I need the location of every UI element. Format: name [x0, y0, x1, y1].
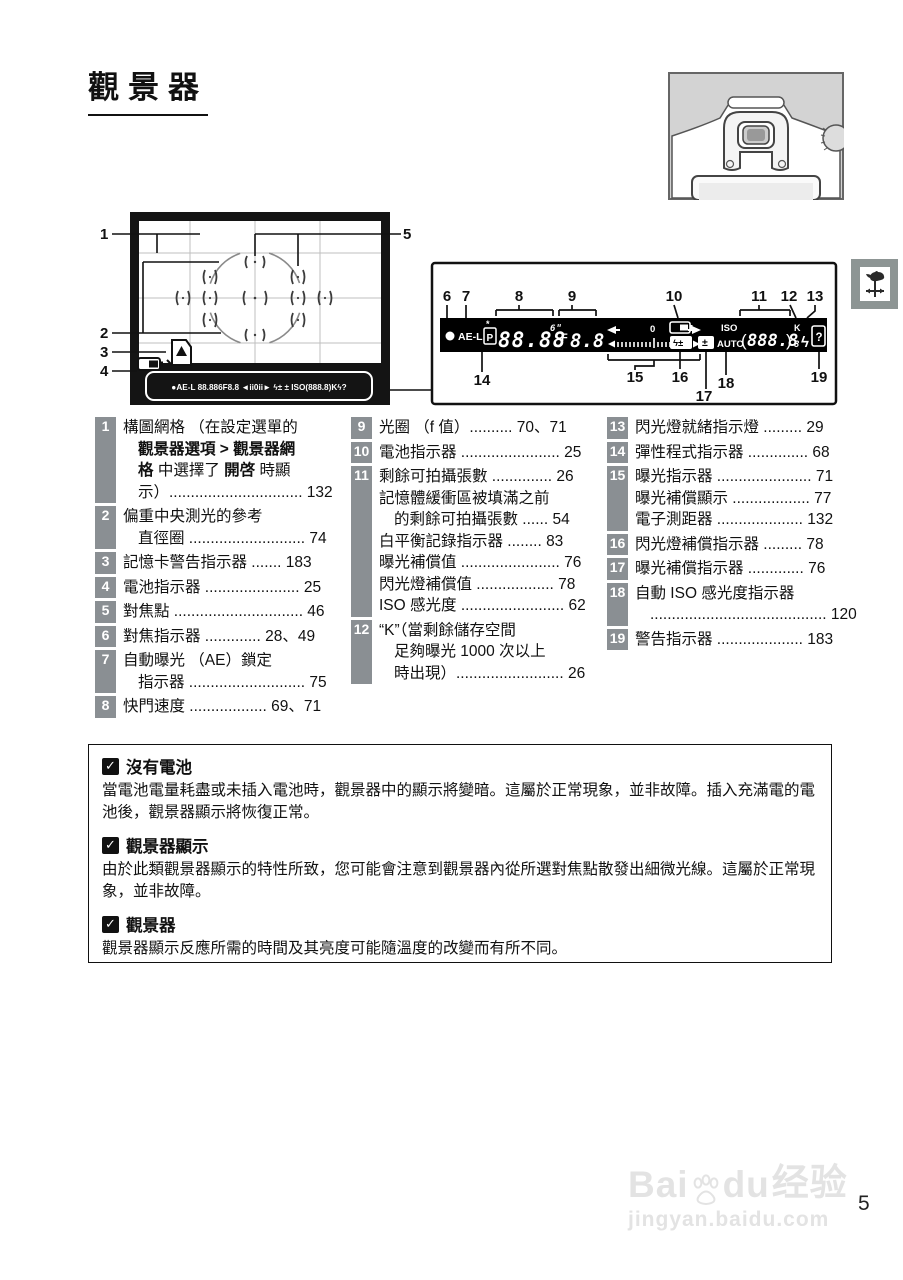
legend-item-content: 剩餘可拍攝張數 .............. 26記憶體緩衝區被填滿之前的剩餘可…	[379, 466, 599, 617]
viewfinder-diagram: ●AE-L 88.886F8.8 ◄ii0ii► ϟ± ± ISO(888.8)…	[88, 200, 845, 412]
legend-item-18: 18自動 ISO 感光度指示器.........................…	[607, 583, 855, 626]
legend-item-number: 10	[351, 442, 372, 464]
baidu-url: jingyan.baidu.com	[628, 1208, 848, 1232]
baidu-paw-icon	[691, 1174, 721, 1206]
legend-text: 格	[138, 462, 154, 479]
auto-label: AUTO	[717, 339, 744, 350]
legend-text: ISO 感光度 ........................ 62	[379, 597, 586, 614]
legend-item-number: 4	[95, 577, 116, 599]
legend-text: 警告指示器 .................... 183	[635, 631, 833, 648]
baidu-logo: Bai du 经验	[628, 1152, 848, 1206]
legend-text: 光圈 （f 值）.......... 70、71	[379, 419, 567, 436]
mode-letter: P	[487, 333, 494, 344]
legend-item-content: 構圖網格 （在設定選單的觀景器選項 > 觀景器網格 中選擇了 開啓 時顯示）..…	[123, 417, 343, 503]
note-title: ✓觀景器	[102, 912, 818, 936]
legend-line: 曝光指示器 ...................... 71	[635, 466, 855, 488]
legend-item-12: 12“K”（當剩餘儲存空間足夠曝光 1000 次以上時出現）..........…	[351, 620, 599, 685]
camera-eyepiece-illustration	[668, 72, 844, 200]
legend-item-content: 閃光燈就緒指示燈 ......... 29	[635, 417, 855, 439]
note-title: ✓沒有電池	[102, 754, 818, 778]
callout-17: 17	[696, 388, 713, 405]
legend-item-number: 15	[607, 466, 628, 531]
callout-5: 5	[403, 226, 411, 243]
legend-item-content: 記憶卡警告指示器 ....... 183	[123, 552, 343, 574]
note: ✓沒有電池當電池電量耗盡或未插入電池時，觀景器中的顯示將變暗。這屬於正常現象，並…	[102, 754, 818, 824]
callout-9: 9	[568, 288, 576, 305]
legend-item-number: 19	[607, 629, 628, 651]
legend-text: 直徑圈 ........................... 74	[138, 530, 327, 547]
legend: 1構圖網格 （在設定選單的觀景器選項 > 觀景器網格 中選擇了 開啓 時顯示）.…	[95, 417, 839, 721]
callout-18: 18	[718, 375, 735, 392]
legend-item-4: 4電池指示器 ...................... 25	[95, 577, 343, 599]
legend-item-11: 11剩餘可拍攝張數 .............. 26記憶體緩衝區被填滿之前的剩…	[351, 466, 599, 617]
legend-text: 足夠曝光 1000 次以上	[394, 643, 546, 660]
legend-item-number: 18	[607, 583, 628, 626]
callout-3: 3	[100, 344, 108, 361]
legend-item-number: 11	[351, 466, 372, 617]
legend-line: 快門速度 .................. 69、71	[123, 696, 343, 718]
viewfinder-window	[747, 129, 765, 141]
callout-6: 6	[443, 288, 451, 305]
legend-text: 觀景器選項 > 觀景器網	[138, 441, 295, 458]
legend-item-6: 6對焦指示器 ............. 28、49	[95, 626, 343, 648]
legend-line: 構圖網格 （在設定選單的	[123, 417, 343, 439]
legend-line: 剩餘可拍攝張數 .............. 26	[379, 466, 599, 488]
callout-4: 4	[100, 363, 109, 380]
callout-13: 13	[807, 288, 824, 305]
legend-text: 的剩餘可拍攝張數 ...... 54	[394, 511, 570, 528]
legend-column-1: 1構圖網格 （在設定選單的觀景器選項 > 觀景器網格 中選擇了 開啓 時顯示）.…	[95, 417, 343, 721]
note-body: 當電池電量耗盡或未插入電池時，觀景器中的顯示將變暗。這屬於正常現象，並非故障。插…	[102, 780, 818, 824]
callout-11: 11	[751, 288, 767, 305]
baidu-text-cn: 经验	[772, 1152, 848, 1206]
legend-item-content: 彈性程式指示器 .............. 68	[635, 442, 855, 464]
legend-item-content: “K”（當剩餘儲存空間足夠曝光 1000 次以上時出現）............…	[379, 620, 599, 685]
legend-line: 時出現）......................... 26	[379, 663, 599, 685]
legend-line: 警告指示器 .................... 183	[635, 629, 855, 651]
legend-line: 曝光補償值 ....................... 76	[379, 552, 599, 574]
legend-line: 自動曝光 （AE）鎖定	[123, 650, 343, 672]
legend-text: ........................................…	[650, 606, 857, 623]
legend-text: 自動曝光 （AE）鎖定	[123, 652, 272, 669]
legend-item-number: 9	[351, 417, 372, 439]
legend-text: 曝光補償顯示 .................. 77	[635, 490, 831, 507]
legend-item-19: 19警告指示器 .................... 183	[607, 629, 855, 651]
legend-text: 曝光補償值 ....................... 76	[379, 554, 581, 571]
note-body: 觀景器顯示反應所需的時間及其亮度可能隨溫度的改變而有所不同。	[102, 938, 818, 960]
legend-item-number: 6	[95, 626, 116, 648]
legend-text: 彈性程式指示器 .............. 68	[635, 444, 830, 461]
legend-item-number: 8	[95, 696, 116, 718]
legend-item-content: 曝光補償指示器 ............. 76	[635, 558, 855, 580]
baidu-text-left: Bai	[628, 1164, 689, 1206]
callout-2: 2	[100, 325, 108, 342]
legend-line: 曝光補償指示器 ............. 76	[635, 558, 855, 580]
legend-line: 白平衡記錄指示器 ........ 83	[379, 531, 599, 553]
legend-item-number: 5	[95, 601, 116, 623]
legend-text: 時顯	[255, 462, 290, 479]
mini-lcd-text: ●AE-L 88.886F8.8 ◄ii0ii► ϟ± ± ISO(888.8)…	[171, 383, 346, 392]
legend-text: 記憶卡警告指示器 ....... 183	[123, 554, 312, 571]
note-title-text: 觀景器顯示	[126, 833, 209, 857]
legend-item-content: 快門速度 .................. 69、71	[123, 696, 343, 718]
callout-1: 1	[100, 226, 108, 243]
legend-item-content: 警告指示器 .................... 183	[635, 629, 855, 651]
legend-line: 光圈 （f 值）.......... 70、71	[379, 417, 599, 439]
callout-16: 16	[672, 369, 689, 386]
legend-text: 電池指示器 ....................... 25	[379, 444, 581, 461]
legend-item-content: 電池指示器 ...................... 25	[123, 577, 343, 599]
legend-text: 剩餘可拍攝張數 .............. 26	[379, 468, 574, 485]
legend-item-15: 15曝光指示器 ...................... 71曝光補償顯示 …	[607, 466, 855, 531]
legend-item-5: 5對焦點 .............................. 46	[95, 601, 343, 623]
legend-item-13: 13閃光燈就緒指示燈 ......... 29	[607, 417, 855, 439]
legend-text: 曝光指示器 ...................... 71	[635, 468, 833, 485]
iso-label: ISO	[721, 323, 737, 334]
legend-item-number: 16	[607, 534, 628, 556]
legend-line: 觀景器選項 > 觀景器網	[123, 439, 343, 461]
legend-line: “K”（當剩餘儲存空間	[379, 620, 599, 642]
svg-text:?: ?	[816, 332, 823, 344]
legend-text: 時出現）......................... 26	[394, 665, 585, 682]
baidu-text-right: du	[723, 1164, 770, 1206]
check-icon: ✓	[102, 758, 119, 775]
note-title-text: 觀景器	[126, 912, 176, 936]
legend-line: 偏重中央測光的參考	[123, 506, 343, 528]
legend-item-17: 17曝光補償指示器 ............. 76	[607, 558, 855, 580]
legend-line: 閃光燈就緒指示燈 ......... 29	[635, 417, 855, 439]
check-icon: ✓	[102, 916, 119, 933]
legend-text: 快門速度 .................. 69、71	[123, 698, 321, 715]
legend-item-1: 1構圖網格 （在設定選單的觀景器選項 > 觀景器網格 中選擇了 開啓 時顯示）.…	[95, 417, 343, 503]
legend-text: 偏重中央測光的參考	[123, 508, 263, 525]
legend-item-7: 7自動曝光 （AE）鎖定指示器 ........................…	[95, 650, 343, 693]
callout-19: 19	[811, 369, 828, 386]
callout-14: 14	[474, 372, 491, 389]
note-title-text: 沒有電池	[126, 754, 192, 778]
legend-line: 彈性程式指示器 .............. 68	[635, 442, 855, 464]
legend-line: 閃光燈補償值 .................. 78	[379, 574, 599, 596]
note: ✓觀景器觀景器顯示反應所需的時間及其亮度可能隨溫度的改變而有所不同。	[102, 912, 818, 960]
callout-12: 12	[781, 288, 798, 305]
callout-7: 7	[462, 288, 470, 305]
legend-item-3: 3記憶卡警告指示器 ....... 183	[95, 552, 343, 574]
check-icon: ✓	[102, 837, 119, 854]
legend-text: 電池指示器 ...................... 25	[123, 579, 321, 596]
paren-close: )	[786, 331, 792, 350]
legend-text: 中選擇了	[154, 462, 225, 479]
callout-15: 15	[627, 369, 644, 386]
legend-item-8: 8快門速度 .................. 69、71	[95, 696, 343, 718]
legend-item-10: 10電池指示器 ....................... 25	[351, 442, 599, 464]
page-number: 5	[858, 1192, 870, 1216]
ae-lock-label: AE-L	[458, 331, 483, 343]
legend-line: 的剩餘可拍攝張數 ...... 54	[379, 509, 599, 531]
legend-line: 對焦指示器 ............. 28、49	[123, 626, 343, 648]
legend-item-number: 12	[351, 620, 372, 685]
flash-ready-bolt: ϟ	[801, 334, 809, 351]
legend-line: 對焦點 .............................. 46	[123, 601, 343, 623]
mode-dial	[823, 125, 844, 151]
legend-line: 記憶體緩衝區被填滿之前	[379, 488, 599, 510]
legend-text: “K”（當剩餘儲存空間	[379, 622, 516, 639]
legend-text: 閃光燈補償值 .................. 78	[379, 576, 575, 593]
legend-line: 格 中選擇了 開啓 時顯	[123, 460, 343, 482]
svg-text:±: ±	[702, 337, 708, 349]
legend-text: 對焦指示器 ............. 28、49	[123, 628, 315, 645]
legend-text: 曝光補償指示器 ............. 76	[635, 560, 825, 577]
legend-text: 開啓	[224, 462, 255, 479]
k-indicator: K	[794, 323, 801, 333]
legend-line: 指示器 ........................... 75	[123, 672, 343, 694]
note: ✓觀景器顯示由於此類觀景器顯示的特性所致，您可能會注意到觀景器內從所選對焦點散發…	[102, 833, 818, 903]
monitor-screen	[699, 183, 813, 200]
legend-text: 示）............................... 132	[138, 484, 333, 501]
camera-illustration-svg	[668, 72, 844, 200]
legend-line: 足夠曝光 1000 次以上	[379, 641, 599, 663]
legend-item-number: 13	[607, 417, 628, 439]
legend-item-2: 2偏重中央測光的參考直徑圈 ..........................…	[95, 506, 343, 549]
legend-text: 對焦點 .............................. 46	[123, 603, 325, 620]
legend-item-content: 光圈 （f 值）.......... 70、71	[379, 417, 599, 439]
flash-housing	[728, 97, 784, 108]
callout-10: 10	[666, 288, 683, 305]
legend-item-content: 閃光燈補償指示器 ......... 78	[635, 534, 855, 556]
legend-line: 示）............................... 132	[123, 482, 343, 504]
legend-text: 白平衡記錄指示器 ........ 83	[379, 533, 563, 550]
legend-item-content: 偏重中央測光的參考直徑圈 ...........................…	[123, 506, 343, 549]
legend-column-3: 13閃光燈就緒指示燈 ......... 2914彈性程式指示器 .......…	[607, 417, 855, 721]
flash-compensation-icon: ϟ±	[670, 336, 692, 349]
legend-item-number: 7	[95, 650, 116, 693]
legend-text: 閃光燈補償指示器 ......... 78	[635, 536, 824, 553]
legend-item-number: 17	[607, 558, 628, 580]
legend-item-number: 14	[607, 442, 628, 464]
legend-item-number: 3	[95, 552, 116, 574]
legend-item-content: 對焦點 .............................. 46	[123, 601, 343, 623]
legend-line: 曝光補償顯示 .................. 77	[635, 488, 855, 510]
lcd-panel-group: AE-L * P 88.88 6ʺ F 8.8 0	[432, 263, 836, 405]
legend-item-9: 9光圈 （f 值）.......... 70、71	[351, 417, 599, 439]
viewfinder-frame-group: ●AE-L 88.886F8.8 ◄ii0ii► ϟ± ± ISO(888.8)…	[100, 212, 433, 405]
legend-item-content: 對焦指示器 ............. 28、49	[123, 626, 343, 648]
legend-line: 電池指示器 ...................... 25	[123, 577, 343, 599]
legend-text: 閃光燈就緒指示燈 ......... 29	[635, 419, 824, 436]
aperture-digits: 8.8	[570, 330, 604, 352]
legend-item-14: 14彈性程式指示器 .............. 68	[607, 442, 855, 464]
note-body: 由於此類觀景器顯示的特性所致，您可能會注意到觀景器內從所選對焦點散發出細微光線。…	[102, 859, 818, 903]
legend-line: 直徑圈 ........................... 74	[123, 528, 343, 550]
rooster-weathervane-icon	[862, 269, 888, 299]
callout-8: 8	[515, 288, 523, 305]
legend-item-16: 16閃光燈補償指示器 ......... 78	[607, 534, 855, 556]
legend-item-content: 電池指示器 ....................... 25	[379, 442, 599, 464]
battery-indicator-icon	[138, 358, 163, 370]
svg-text:ϟ±: ϟ±	[673, 338, 683, 349]
legend-line: 閃光燈補償指示器 ......... 78	[635, 534, 855, 556]
legend-text: 自動 ISO 感光度指示器	[635, 585, 794, 602]
k-small-digit: 8	[794, 340, 799, 350]
legend-item-content: 自動 ISO 感光度指示器...........................…	[635, 583, 857, 626]
notes-box: ✓沒有電池當電池電量耗盡或未插入電池時，觀景器中的顯示將變暗。這屬於正常現象，並…	[88, 744, 832, 963]
legend-line: ISO 感光度 ........................ 62	[379, 595, 599, 617]
legend-line: 電子測距器 .................... 132	[635, 509, 855, 531]
chapter-tab	[851, 259, 898, 309]
chapter-tab-inner	[860, 267, 890, 301]
legend-column-2: 9光圈 （f 值）.......... 70、7110電池指示器 .......…	[351, 417, 599, 721]
legend-item-number: 2	[95, 506, 116, 549]
shutter-small-digits: 6ʺ	[550, 324, 561, 334]
legend-line: 記憶卡警告指示器 ....... 183	[123, 552, 343, 574]
baidu-watermark: Bai du 经验 jingyan.baidu.com	[628, 1152, 848, 1232]
aperture-f-label: F	[561, 332, 568, 344]
legend-item-number: 1	[95, 417, 116, 503]
exposure-compensation-icon: ±	[698, 336, 714, 349]
legend-item-content: 自動曝光 （AE）鎖定指示器 .........................…	[123, 650, 343, 693]
manual-page: 觀景器	[0, 0, 903, 1280]
scale-zero: 0	[650, 324, 655, 335]
page-title: 觀景器	[88, 62, 208, 116]
legend-line: 自動 ISO 感光度指示器	[635, 583, 857, 605]
focus-indicator-dot	[446, 332, 455, 341]
legend-text: 電子測距器 .................... 132	[635, 511, 833, 528]
legend-text: 記憶體緩衝區被填滿之前	[379, 490, 550, 507]
legend-line: 電池指示器 ....................... 25	[379, 442, 599, 464]
legend-item-content: 曝光指示器 ...................... 71曝光補償顯示 ..…	[635, 466, 855, 531]
legend-line: ........................................…	[635, 604, 857, 626]
legend-text: 指示器 ........................... 75	[138, 674, 327, 691]
legend-text: 構圖網格 （在設定選單的	[123, 419, 298, 436]
note-title: ✓觀景器顯示	[102, 833, 818, 857]
